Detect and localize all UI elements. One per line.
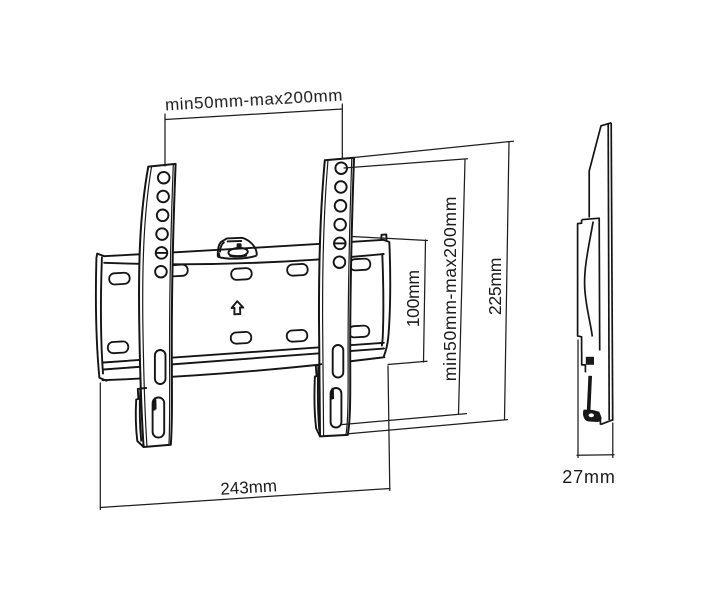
svg-text:225mm: 225mm (485, 258, 505, 315)
svg-text:min50mm-max200mm: min50mm-max200mm (440, 196, 460, 381)
svg-text:243mm: 243mm (220, 476, 278, 498)
svg-text:100mm: 100mm (403, 270, 423, 327)
svg-text:27mm: 27mm (562, 467, 616, 487)
